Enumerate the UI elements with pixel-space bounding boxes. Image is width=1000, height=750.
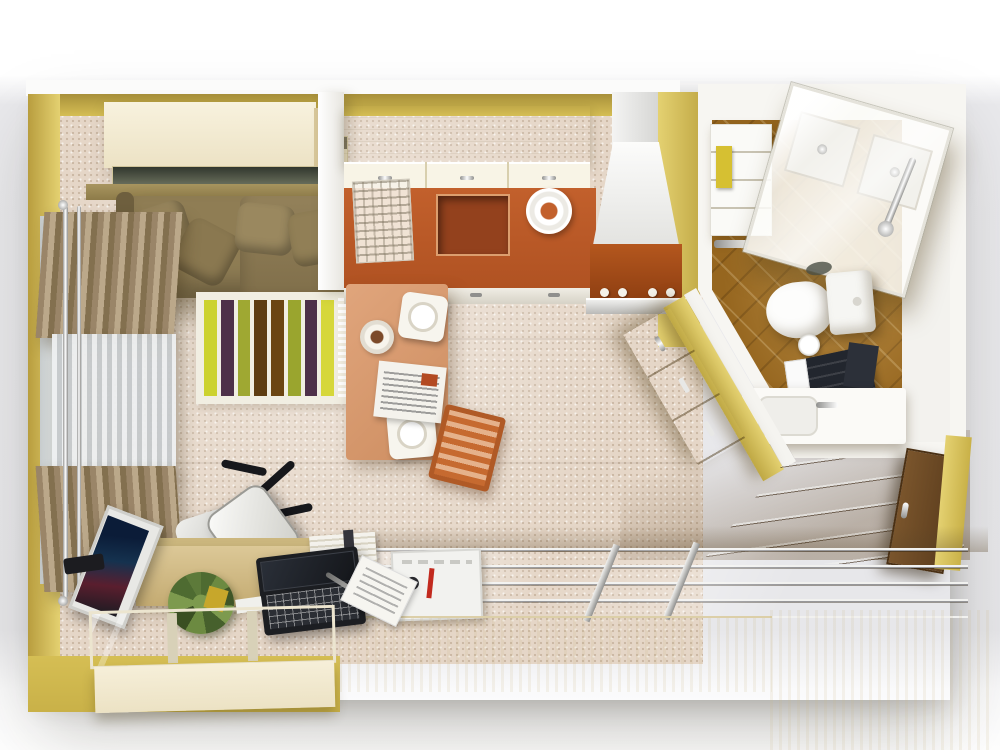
sofa-pillow (234, 201, 297, 257)
rug-stripe (204, 300, 217, 396)
organizer-contents (402, 560, 472, 564)
glass-top-cabinet (87, 605, 342, 714)
chair-leg (221, 459, 268, 476)
floorplan-render (0, 0, 1000, 750)
glass-shelf (112, 166, 330, 186)
shower-tray (784, 111, 861, 188)
cabinet-glass-top (89, 605, 336, 669)
faucet (816, 402, 838, 408)
rug-stripe (221, 300, 234, 396)
striped-rug (196, 292, 348, 404)
curtain-sheer (52, 334, 176, 474)
cabinet-handle (470, 293, 482, 297)
chrome-fitting (714, 240, 748, 248)
toilet-bowl (764, 279, 835, 341)
shower-tray (856, 134, 933, 211)
cabinet-handle (548, 293, 560, 297)
dish-rack (352, 179, 414, 264)
stove-knob (600, 288, 609, 297)
shower-column (883, 157, 916, 226)
rug-stripe (321, 300, 334, 396)
plate (397, 291, 449, 343)
rug-stripe (271, 300, 284, 396)
cabinet-handle (460, 176, 474, 180)
toilet (763, 267, 881, 346)
cabinet-door-divider (425, 162, 427, 190)
flush-plate (798, 334, 820, 356)
stove-knob (666, 288, 675, 297)
yellow-towel (716, 146, 732, 188)
cabinet-divider (247, 611, 258, 661)
kitchen-sink (436, 194, 510, 256)
wardrobe-front (770, 610, 994, 750)
wall-cabinet (104, 102, 316, 168)
coffee-cup (360, 320, 394, 354)
rug-stripe (288, 300, 301, 396)
shower-head (876, 219, 896, 239)
cabinet-front (94, 661, 335, 713)
black-towels (843, 342, 879, 390)
upper-cabinets (344, 106, 590, 164)
partition-wall (318, 92, 344, 290)
wardrobe-front (330, 616, 772, 692)
curtain-rod-finial (58, 596, 68, 606)
newspaper (373, 361, 446, 424)
rug-stripe (238, 300, 251, 396)
curtain-rod (63, 206, 68, 598)
rug-stripe (254, 300, 267, 396)
plate (526, 188, 572, 234)
curtain-brown-top (36, 212, 183, 338)
stove-knob (618, 288, 627, 297)
curtain-rod (77, 206, 81, 598)
curtain-rod-finial (58, 200, 68, 210)
cabinet-divider (167, 613, 178, 663)
toilet-paper (784, 359, 810, 392)
cabinet-handle (542, 176, 556, 180)
toilet-tank (825, 270, 876, 336)
rug-stripe (305, 300, 318, 396)
cabinet-door-divider (507, 162, 509, 190)
stove-knob (648, 288, 657, 297)
